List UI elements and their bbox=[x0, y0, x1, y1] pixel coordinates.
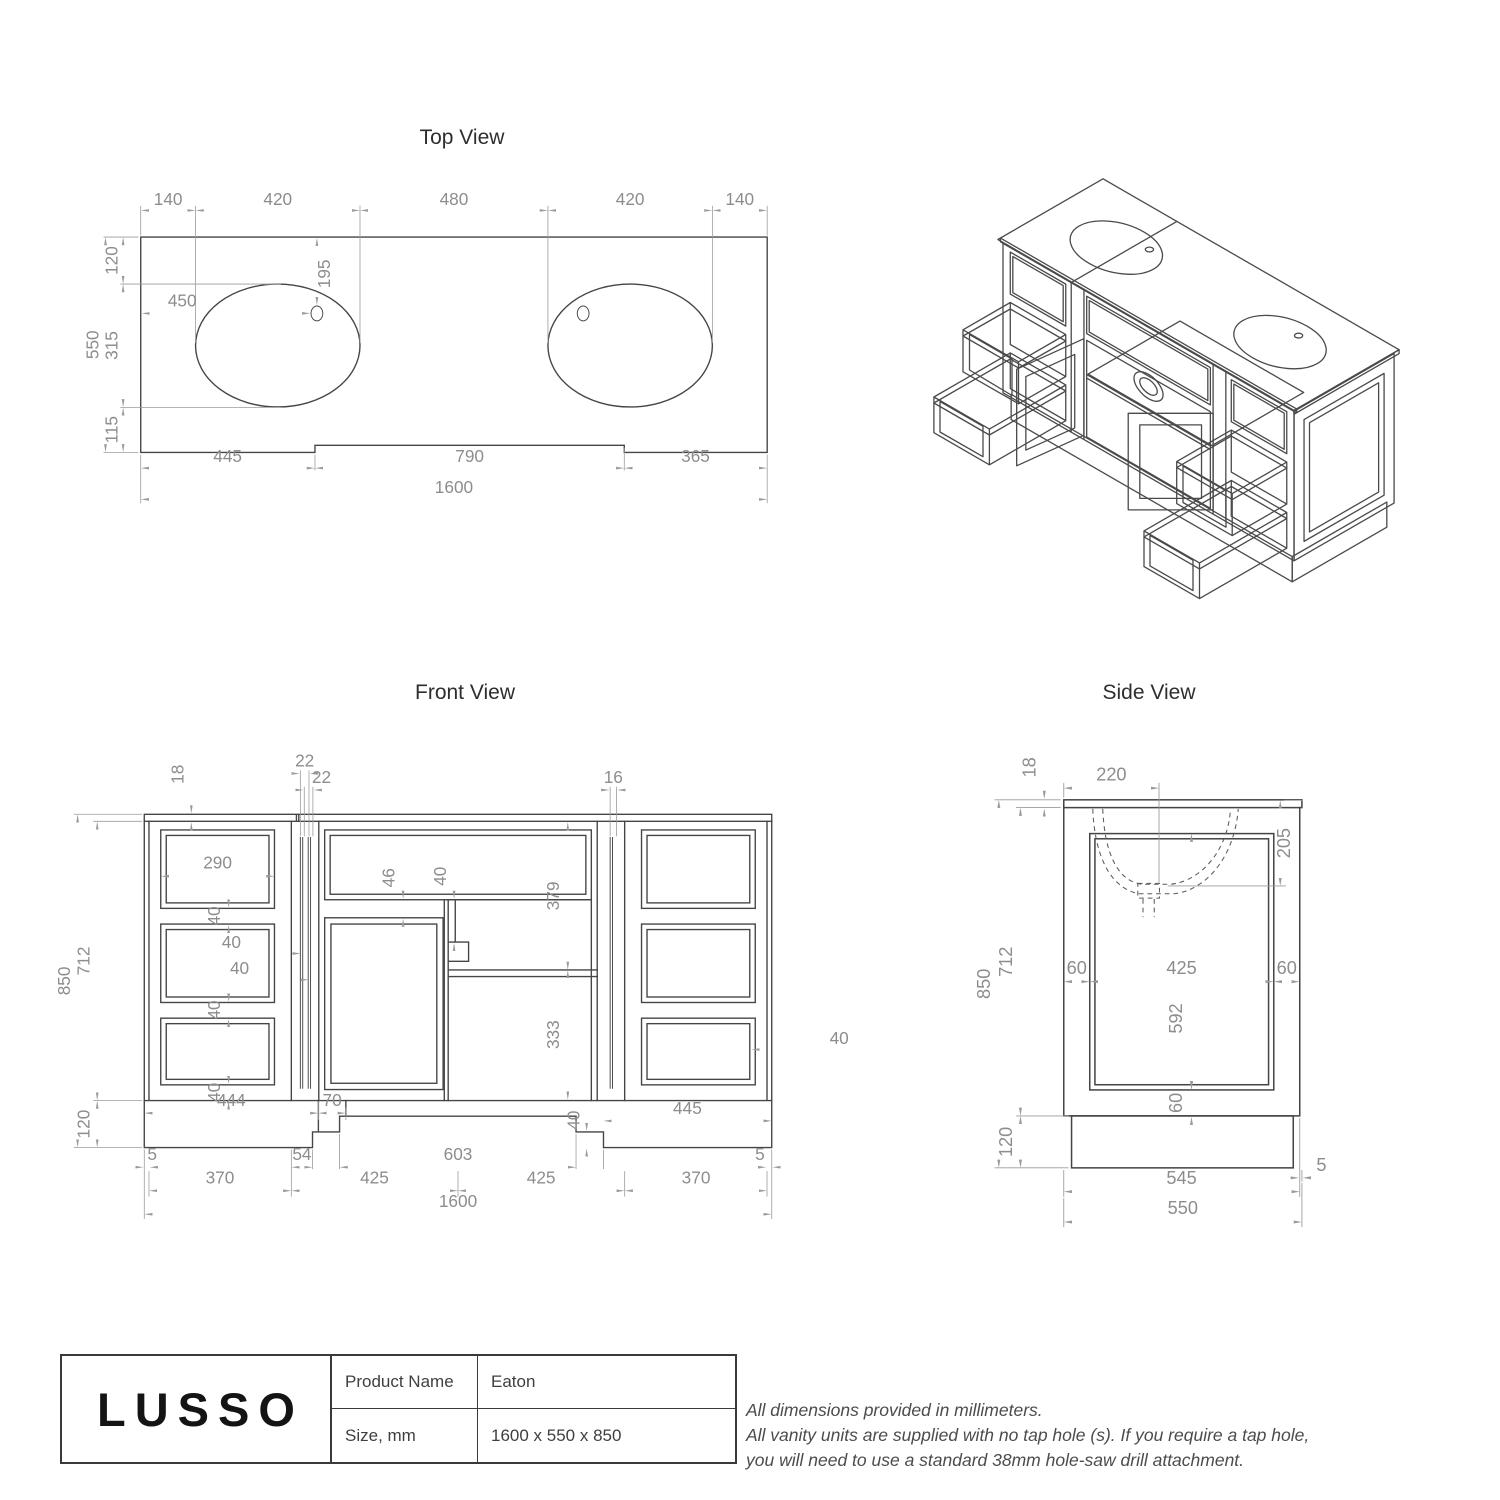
basin-right bbox=[548, 284, 712, 407]
note-line: All vanity units are supplied with no ta… bbox=[746, 1423, 1406, 1448]
dim-label: 545 bbox=[1166, 1168, 1196, 1188]
right-drawer-stack bbox=[642, 830, 756, 1085]
dim-label: 40 bbox=[564, 1111, 584, 1130]
dim-label: 205 bbox=[1274, 828, 1294, 858]
note-line: All dimensions provided in millimeters. bbox=[746, 1398, 1406, 1423]
dim-label: 850 bbox=[58, 967, 74, 996]
dim-label: 550 bbox=[82, 330, 102, 359]
dim-label: 425 bbox=[527, 1168, 556, 1188]
iso-countertop-top bbox=[998, 179, 1399, 411]
drawing-notes: All dimensions provided in millimeters. … bbox=[746, 1398, 1406, 1474]
product-name-label: Product Name bbox=[332, 1356, 478, 1409]
dim-label: 425 bbox=[1166, 958, 1196, 978]
dim-label: 22 bbox=[312, 767, 331, 787]
dim-label: 40 bbox=[204, 1000, 224, 1019]
dim-label: 140 bbox=[725, 190, 754, 209]
dim-label: 140 bbox=[154, 190, 183, 209]
top-view-drawing: 140 420 480 420 140 550 120 315 115 195 … bbox=[82, 190, 822, 512]
side-view-drawing: 220 18 205 850 712 120 60 425 60 592 60 … bbox=[975, 724, 1395, 1261]
dim-label: 420 bbox=[263, 190, 292, 209]
brand-logo: LUSSO bbox=[62, 1356, 332, 1462]
plinth bbox=[1072, 1116, 1294, 1168]
size-label: Size, mm bbox=[332, 1409, 478, 1462]
dim-label: 115 bbox=[102, 416, 122, 443]
dim-label: 16 bbox=[604, 767, 623, 787]
hidden-basin-profile bbox=[1093, 809, 1238, 894]
dim-label: 420 bbox=[616, 190, 645, 209]
countertop-section bbox=[1064, 800, 1302, 808]
dim-label: 5 bbox=[1316, 1155, 1326, 1175]
title-block: LUSSO Product Name Eaton Size, mm 1600 x… bbox=[60, 1354, 737, 1464]
dim-label: 365 bbox=[681, 446, 710, 466]
iso-basin-right bbox=[1215, 305, 1344, 380]
dim-label: 54 bbox=[292, 1144, 312, 1164]
dim-label: 40 bbox=[430, 867, 450, 886]
dim-label: 1600 bbox=[435, 477, 473, 497]
dim-label: 379 bbox=[543, 881, 563, 910]
dim-label: 712 bbox=[73, 947, 93, 976]
dim-label: 40 bbox=[830, 1028, 849, 1048]
dim-label: 18 bbox=[167, 765, 187, 784]
dim-label: 120 bbox=[102, 246, 122, 275]
dim-label: 790 bbox=[455, 446, 484, 466]
dim-label: 1600 bbox=[439, 1191, 477, 1211]
front-view-title: Front View bbox=[415, 681, 515, 705]
top-view-title: Top View bbox=[420, 126, 505, 150]
dim-label: 290 bbox=[203, 852, 232, 872]
iso-basin-left bbox=[1052, 210, 1181, 285]
dim-label: 5 bbox=[755, 1144, 765, 1164]
dim-label: 60 bbox=[1166, 1093, 1186, 1113]
dim-label: 195 bbox=[314, 260, 334, 289]
dim-label: 60 bbox=[1067, 958, 1087, 978]
pilaster-flutes bbox=[300, 837, 612, 1089]
dim-label: 40 bbox=[222, 932, 241, 952]
dim-label: 333 bbox=[543, 1020, 563, 1049]
center-open-compartment bbox=[444, 900, 597, 1101]
dim-label: 603 bbox=[444, 1144, 473, 1164]
dim-label: 120 bbox=[996, 1127, 1016, 1157]
center-door bbox=[325, 918, 443, 1090]
dim-label: 315 bbox=[102, 331, 122, 360]
dim-label: 592 bbox=[1166, 1003, 1186, 1033]
dim-label: 450 bbox=[168, 290, 197, 310]
hidden-waste-outlet bbox=[1138, 883, 1160, 898]
dim-label: 60 bbox=[1277, 958, 1297, 978]
front-view-drawing: 18 22 22 16 850 712 120 290 40 40 40 40 … bbox=[58, 724, 858, 1230]
basin-left bbox=[196, 284, 360, 407]
dim-label: 46 bbox=[378, 868, 398, 887]
product-name-value: Eaton bbox=[478, 1356, 735, 1409]
dim-label: 40 bbox=[204, 906, 224, 925]
dim-label: 220 bbox=[1096, 764, 1126, 784]
countertop-outline bbox=[141, 237, 767, 452]
dim-label: 120 bbox=[73, 1110, 93, 1139]
size-value: 1600 x 550 x 850 bbox=[478, 1409, 735, 1462]
note-line: you will need to use a standard 38mm hol… bbox=[746, 1448, 1406, 1473]
dim-label: 370 bbox=[682, 1168, 711, 1188]
iso-shelf bbox=[1088, 321, 1304, 445]
dim-label: 550 bbox=[1168, 1198, 1198, 1218]
countertop-section bbox=[144, 814, 771, 821]
dim-label: 445 bbox=[673, 1098, 702, 1118]
dim-label: 480 bbox=[440, 190, 469, 209]
iso-open-door-right bbox=[1128, 413, 1213, 510]
dim-label: 70 bbox=[323, 1090, 342, 1110]
isometric-view-drawing bbox=[895, 140, 1455, 640]
dim-label: 22 bbox=[295, 750, 314, 770]
side-view-title: Side View bbox=[1102, 681, 1195, 705]
dim-label: 370 bbox=[206, 1168, 235, 1188]
technical-drawing-sheet: Top View Front View Side View bbox=[0, 0, 1500, 1500]
dim-label: 712 bbox=[996, 947, 1016, 977]
dim-label: 5 bbox=[147, 1144, 157, 1164]
dim-label: 444 bbox=[217, 1090, 246, 1110]
waste-hole-left bbox=[311, 306, 323, 321]
waste-hole-right bbox=[577, 306, 589, 321]
dim-label: 425 bbox=[360, 1168, 389, 1188]
dim-label: 18 bbox=[1020, 757, 1040, 777]
dim-label: 445 bbox=[213, 446, 242, 466]
dim-label: 40 bbox=[230, 958, 249, 978]
dim-label: 850 bbox=[975, 969, 994, 999]
